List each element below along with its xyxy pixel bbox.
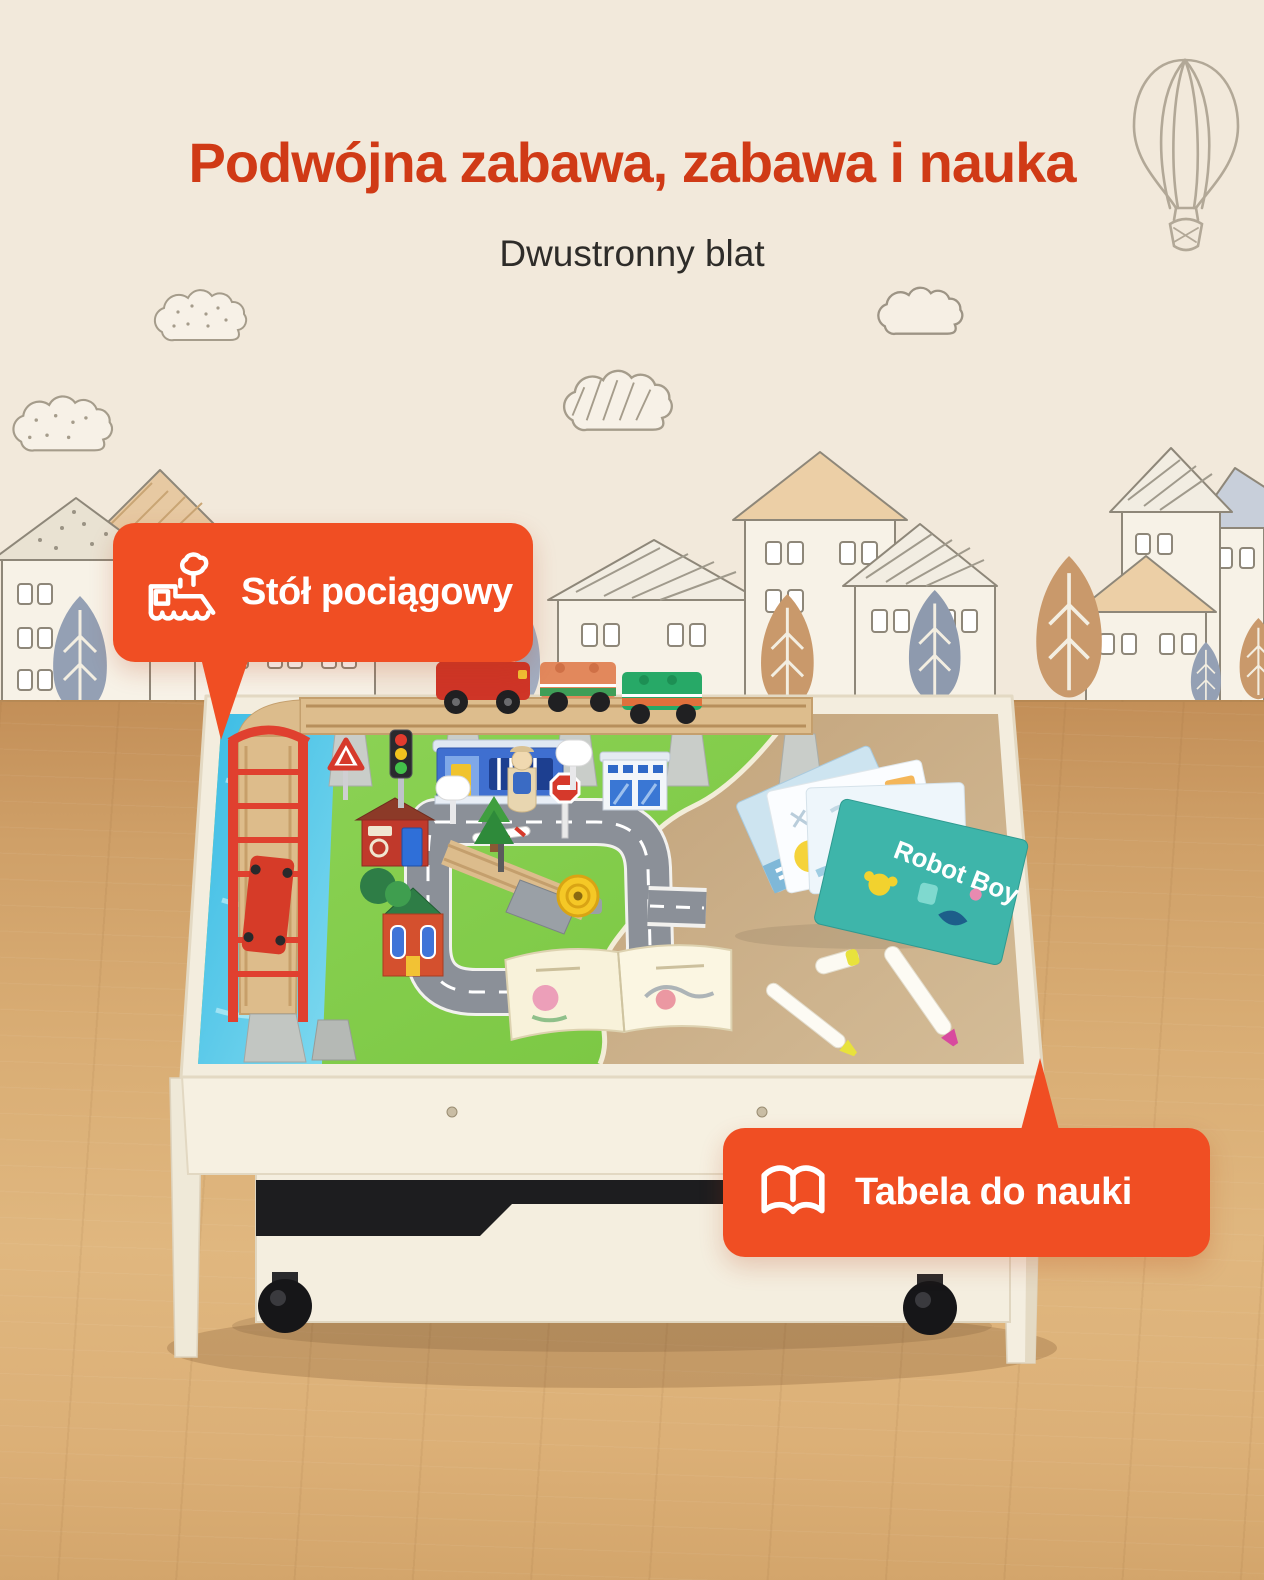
- callout-train-table: Stół pociągowy: [113, 523, 533, 662]
- product-marketing-image: Podwójna zabawa, zabawa i nauka Dwustron…: [0, 0, 1264, 1580]
- page-title: Podwójna zabawa, zabawa i nauka: [0, 130, 1264, 195]
- callout-learning-pointer: [1021, 1058, 1059, 1130]
- cloud-sketch-hatched: [564, 371, 672, 430]
- cloud-sketch-dotted-2: [13, 396, 112, 450]
- open-picture-book: [505, 941, 735, 1042]
- callout-train-pointer: [201, 658, 249, 740]
- cloud-sketch-plain: [878, 288, 962, 334]
- page-subtitle: Dwustronny blat: [0, 233, 1264, 275]
- callout-train-label: Stół pociągowy: [241, 571, 513, 614]
- glass-building: [600, 752, 670, 810]
- cloud-sketch-dotted-1: [155, 290, 246, 340]
- steam-train-icon: [141, 549, 223, 637]
- activity-table-photo: Gdzie? Robot Boy: [130, 620, 1080, 1420]
- callout-learning-label: Tabela do nauki: [855, 1171, 1132, 1214]
- open-book-icon: [753, 1151, 833, 1235]
- callout-learning-table: Tabela do nauki: [723, 1128, 1210, 1257]
